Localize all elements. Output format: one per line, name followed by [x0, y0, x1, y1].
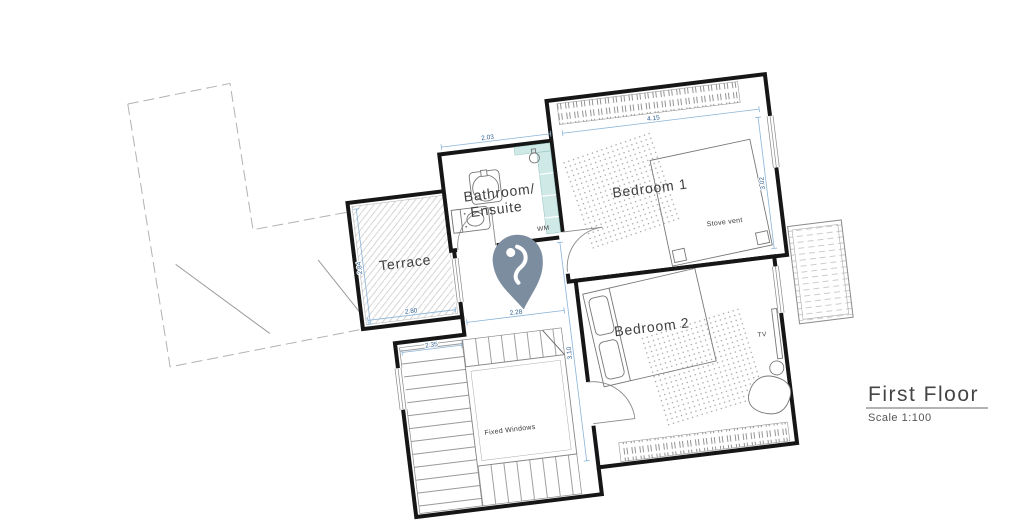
staircase: Fixed Windows — [400, 328, 582, 514]
plan-group: Fixed Windows — [127, 12, 871, 531]
tv-label: TV — [757, 331, 767, 339]
location-pin-icon — [490, 232, 549, 313]
floor-plan-page: Fixed Windows — [0, 0, 1030, 531]
plan-scale: Scale 1:100 — [868, 412, 932, 424]
roof-outline — [127, 71, 367, 368]
roof-slope-line — [176, 254, 270, 344]
fixed-windows-panel — [465, 355, 576, 466]
plan-title: First Floor — [868, 383, 979, 406]
balcony — [788, 220, 854, 324]
title-block: First Floor Scale 1:100 — [866, 383, 988, 424]
floor-plan-drawing: Fixed Windows — [0, 0, 1030, 531]
sink-tap-icon — [481, 170, 488, 177]
